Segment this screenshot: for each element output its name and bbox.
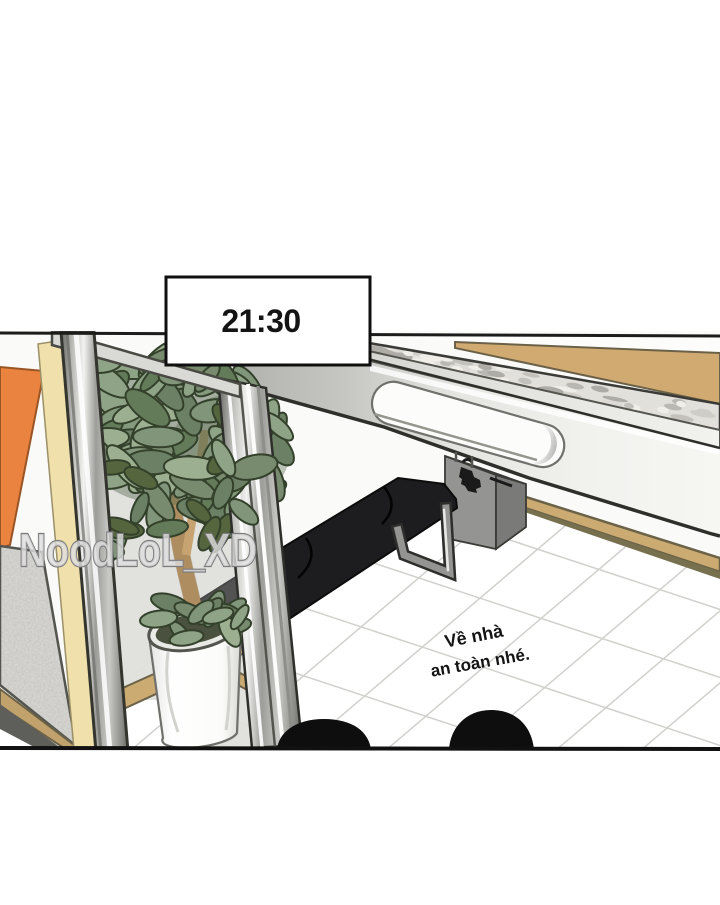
svg-text:NoodLoL_XD: NoodLoL_XD xyxy=(19,524,257,576)
svg-text:21:30: 21:30 xyxy=(221,303,300,339)
